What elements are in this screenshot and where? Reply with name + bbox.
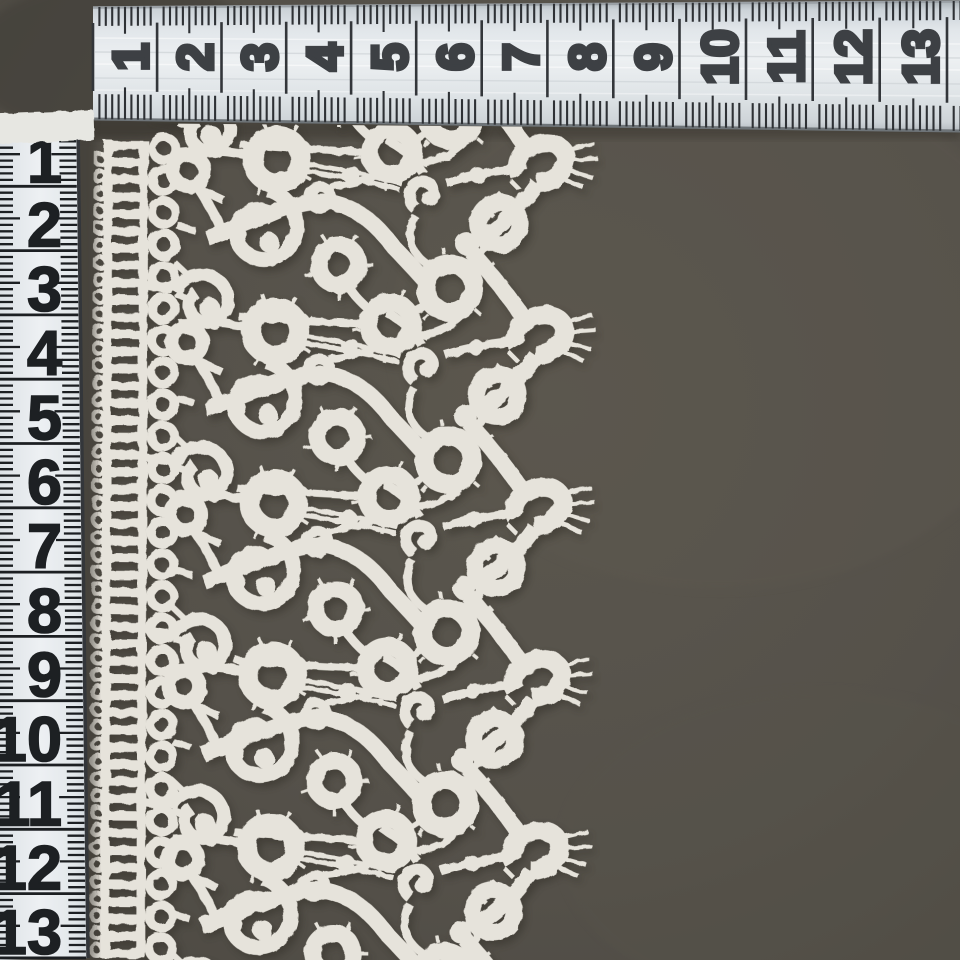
svg-text:9: 9 xyxy=(626,43,682,71)
svg-text:13: 13 xyxy=(0,898,62,960)
svg-text:3: 3 xyxy=(232,43,288,71)
svg-text:7: 7 xyxy=(27,512,62,582)
svg-text:5: 5 xyxy=(27,384,62,454)
svg-text:10: 10 xyxy=(0,705,62,775)
svg-text:6: 6 xyxy=(428,43,484,71)
svg-text:2: 2 xyxy=(27,191,62,261)
svg-text:2: 2 xyxy=(168,43,224,71)
svg-text:7: 7 xyxy=(493,43,549,71)
svg-text:4: 4 xyxy=(27,319,62,389)
svg-text:8: 8 xyxy=(559,43,615,71)
svg-text:9: 9 xyxy=(27,641,62,711)
svg-text:1: 1 xyxy=(103,43,159,71)
svg-text:13: 13 xyxy=(893,29,949,85)
svg-text:8: 8 xyxy=(27,576,62,646)
svg-text:12: 12 xyxy=(0,834,62,904)
svg-text:6: 6 xyxy=(27,448,62,518)
svg-text:11: 11 xyxy=(759,31,815,84)
svg-text:10: 10 xyxy=(692,29,748,85)
svg-text:11: 11 xyxy=(0,769,62,839)
svg-text:12: 12 xyxy=(826,29,882,85)
svg-text:4: 4 xyxy=(297,43,353,71)
svg-text:3: 3 xyxy=(27,255,62,325)
svg-text:5: 5 xyxy=(362,43,418,71)
